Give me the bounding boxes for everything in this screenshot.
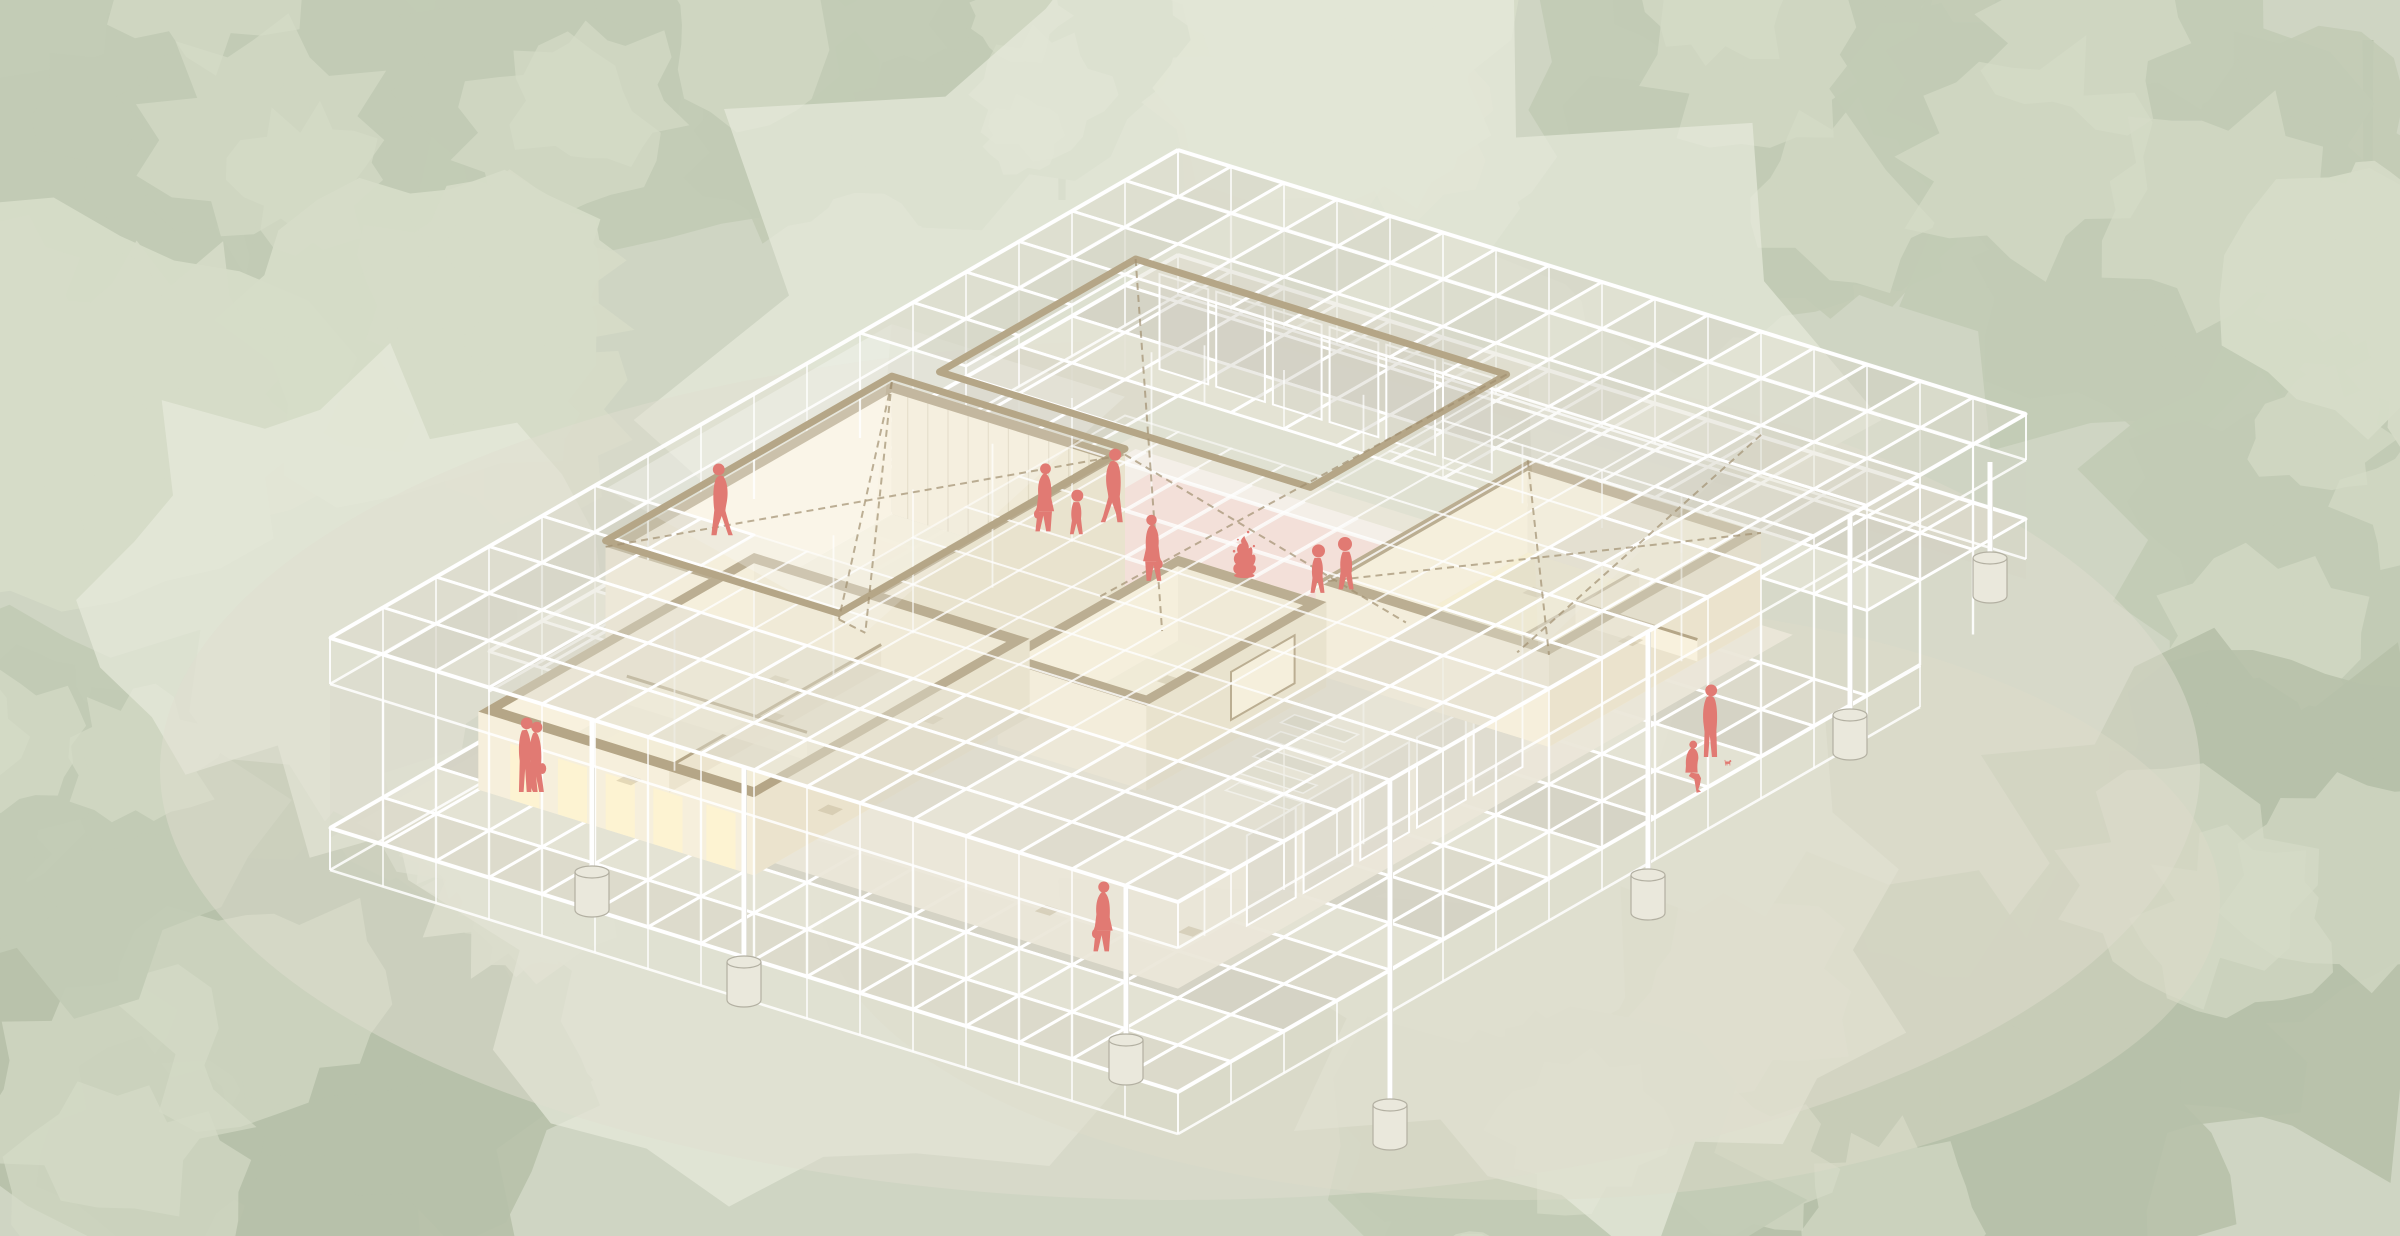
column-footing — [575, 866, 609, 917]
scene-svg — [0, 0, 2400, 1236]
column-footing — [1833, 709, 1867, 760]
architectural-axonometric-rendering — [0, 0, 2400, 1236]
doorway-glow — [558, 758, 587, 823]
column-footing — [727, 956, 761, 1007]
column-footing — [1373, 1099, 1407, 1150]
column-footing — [1109, 1034, 1143, 1085]
column-footing — [1631, 869, 1665, 920]
doorway-glow — [706, 805, 735, 870]
doorway-glow — [653, 788, 682, 853]
column-footing — [1973, 552, 2007, 603]
